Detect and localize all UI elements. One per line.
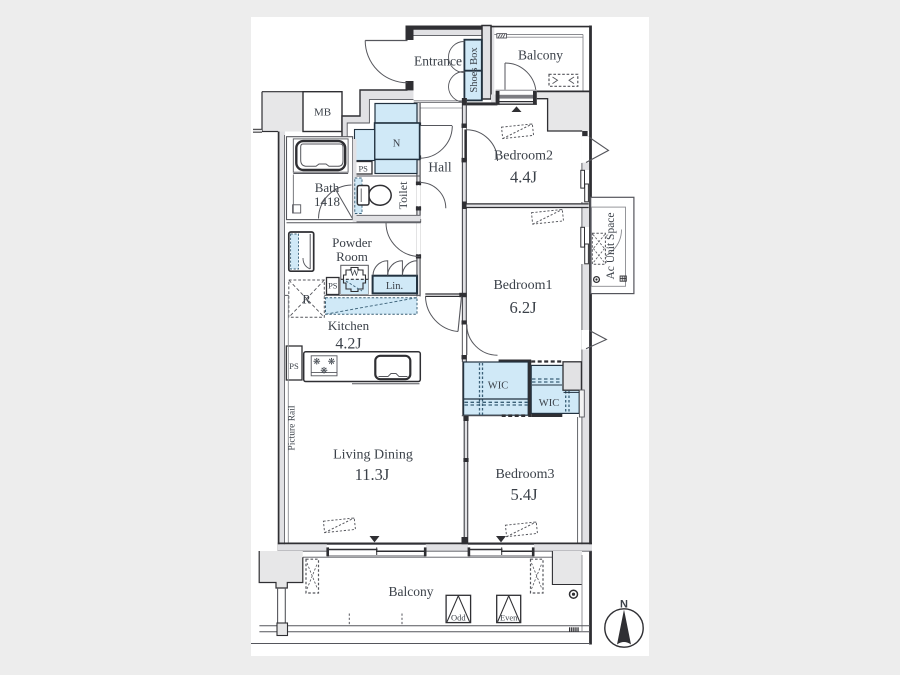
svg-text:Even: Even <box>500 612 518 622</box>
svg-text:Hall: Hall <box>428 160 451 175</box>
svg-text:N: N <box>393 139 401 150</box>
svg-text:Bedroom2: Bedroom2 <box>494 149 553 164</box>
svg-text:Living Dining: Living Dining <box>333 448 413 463</box>
svg-text:Ac Unit Space: Ac Unit Space <box>605 212 617 279</box>
svg-text:4.2J: 4.2J <box>335 336 361 353</box>
svg-text:Bedroom3: Bedroom3 <box>495 467 554 482</box>
svg-text:N: N <box>620 599 628 611</box>
svg-text:Bath: Bath <box>315 180 340 195</box>
svg-text:4.4J: 4.4J <box>510 168 538 187</box>
svg-text:Kitchen: Kitchen <box>328 318 370 333</box>
svg-text:WIC: WIC <box>488 381 508 392</box>
svg-text:PS: PS <box>328 281 338 291</box>
svg-text:PS: PS <box>289 361 299 371</box>
svg-text:R: R <box>302 293 311 307</box>
svg-text:PS: PS <box>358 163 368 173</box>
svg-text:6.2J: 6.2J <box>509 298 537 317</box>
svg-text:11.3J: 11.3J <box>355 465 390 484</box>
svg-text:Toilet: Toilet <box>396 181 410 209</box>
svg-text:Odd: Odd <box>451 612 466 622</box>
svg-text:❋: ❋ <box>320 366 328 376</box>
svg-text:Shoes Box: Shoes Box <box>469 47 480 93</box>
svg-text:Room: Room <box>336 249 368 264</box>
svg-text:5.4J: 5.4J <box>510 485 538 504</box>
svg-text:Balcony: Balcony <box>518 48 563 63</box>
svg-text:Balcony: Balcony <box>389 584 434 599</box>
svg-text:❋: ❋ <box>328 357 336 367</box>
svg-text:W: W <box>350 268 360 279</box>
svg-text:Bedroom1: Bedroom1 <box>493 278 552 293</box>
svg-text:Lin.: Lin. <box>386 281 403 292</box>
svg-text:WIC: WIC <box>539 398 559 409</box>
svg-text:Picture Rail: Picture Rail <box>288 405 298 450</box>
svg-text:Entrance: Entrance <box>414 54 462 69</box>
svg-text:MB: MB <box>314 107 331 119</box>
svg-text:Powder: Powder <box>332 235 372 250</box>
